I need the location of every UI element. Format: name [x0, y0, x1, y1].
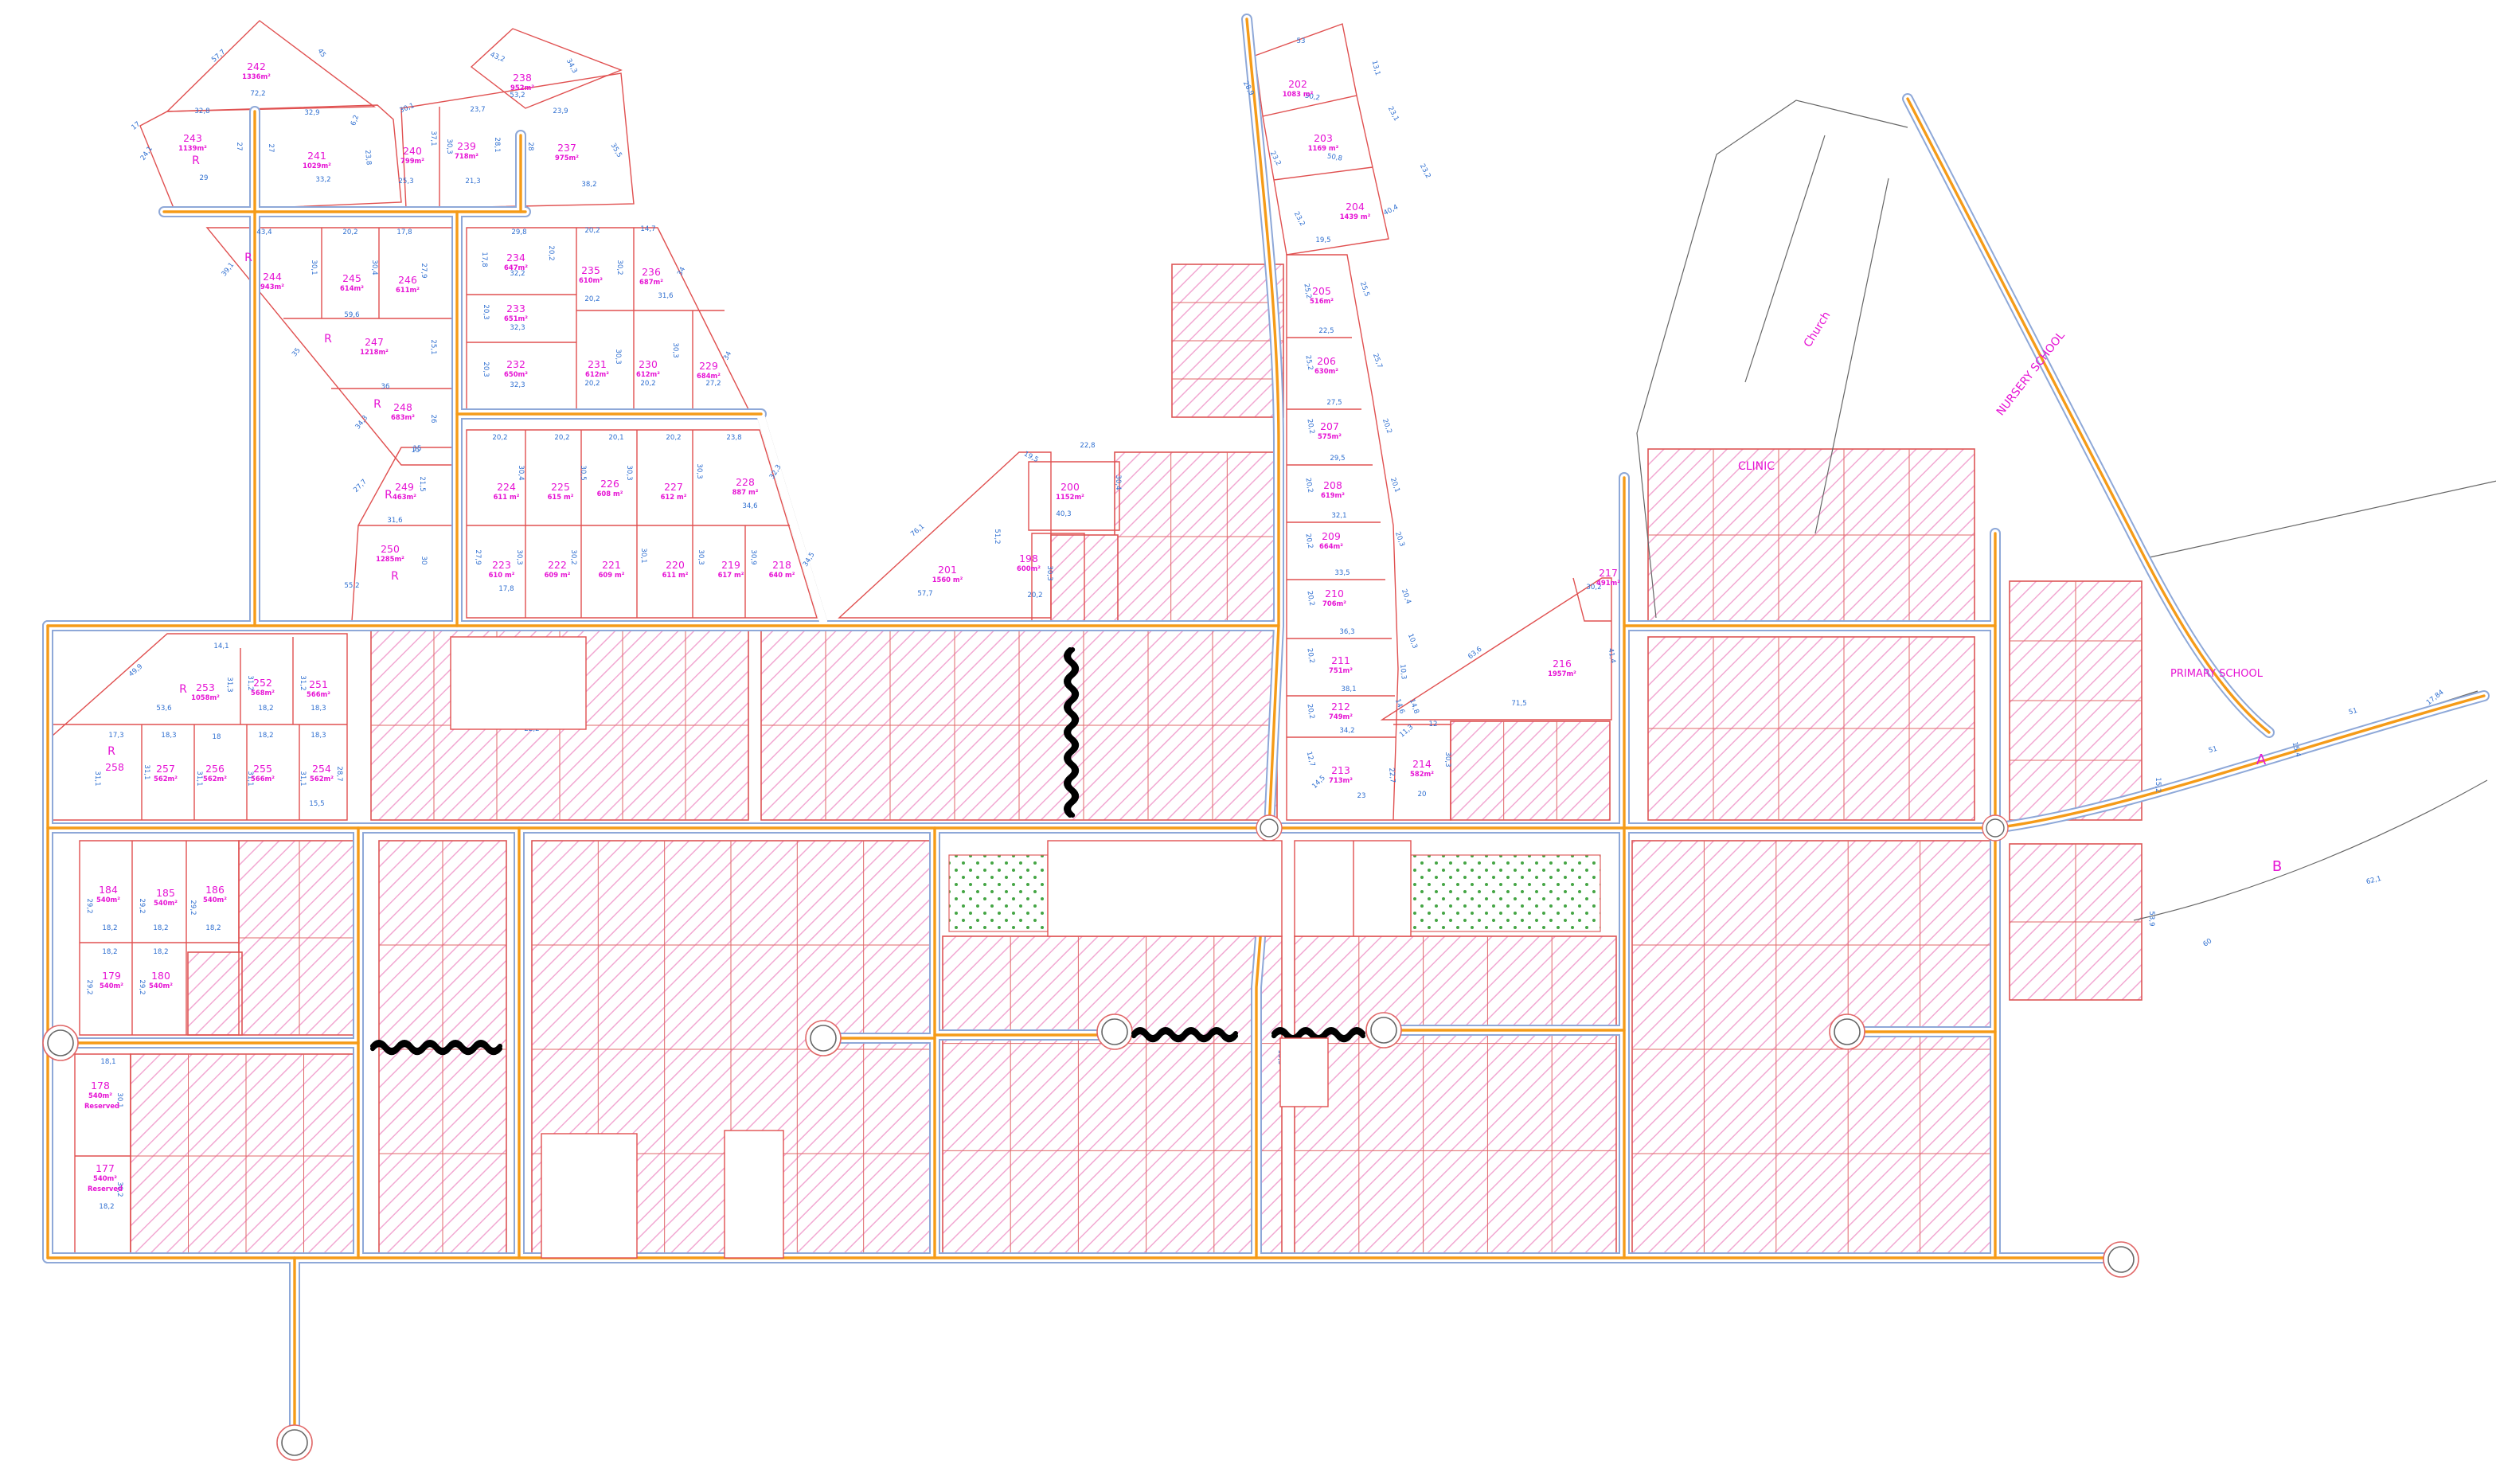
plot-number: 245 — [342, 272, 361, 284]
dimension-label: 29,2 — [138, 898, 146, 913]
plot-number: 253 — [196, 681, 215, 693]
reserved-label: Reserved — [84, 1102, 119, 1110]
dimension-label: 53,9 — [2147, 911, 2155, 926]
plot-number: 203 — [1314, 132, 1333, 144]
plot-area: 647m² — [504, 264, 528, 271]
dimension-label: 18,2 — [258, 705, 273, 713]
dimension-label: 32,3 — [510, 324, 525, 332]
dimension-label: 30,2 — [615, 260, 623, 275]
plot-number: 238 — [513, 72, 532, 84]
dimension-label: 14,1 — [213, 642, 229, 650]
reserve-mark: R — [179, 683, 187, 696]
plot-area: 706m² — [1322, 599, 1346, 607]
dimension-label: 27,2 — [705, 380, 721, 388]
plot-area: 1285m² — [376, 555, 404, 563]
plot-area: 1058m² — [191, 693, 220, 701]
plot-area: 575m² — [1318, 432, 1342, 440]
culdesac-circle-inner — [1371, 1017, 1396, 1043]
dimension-label: 53,6 — [156, 705, 171, 713]
plot-area: 540m² — [93, 1174, 117, 1182]
dimension-label: 29 — [200, 174, 209, 182]
plot-number: 185 — [156, 887, 175, 899]
dimension-label: 20,3 — [482, 304, 490, 319]
culdesac-circle-inner — [282, 1430, 307, 1455]
plot-area: 610 m² — [489, 571, 515, 579]
dimension-label: 57,7 — [917, 590, 932, 598]
plot-area: 540m² — [88, 1092, 112, 1099]
dimension-label: 31,6 — [387, 517, 402, 525]
plot-area: 612 m² — [661, 493, 687, 501]
dimension-label: 38,2 — [581, 181, 596, 189]
plot-number: 226 — [600, 478, 619, 490]
dimension-label: 29,5 — [1330, 455, 1345, 463]
plot-number: 207 — [1320, 420, 1339, 432]
plot-number: 219 — [721, 559, 740, 571]
plot-number: 235 — [581, 264, 600, 276]
plot-number: 204 — [1346, 201, 1365, 213]
dimension-label: 55,2 — [344, 582, 359, 590]
reserve-mark: R — [244, 252, 252, 264]
plot-number: 205 — [1312, 285, 1331, 297]
plot-area: 614m² — [340, 284, 364, 292]
dimension-label: 31,1 — [195, 771, 203, 786]
parcel-D — [1048, 841, 1282, 936]
dimension-label: 19,5 — [1315, 236, 1330, 244]
plot-area: 617 m² — [718, 571, 744, 579]
dimension-label: 27 — [267, 144, 275, 153]
plot-number: 232 — [506, 358, 525, 370]
dimension-label: 20,2 — [584, 227, 600, 235]
dimension-label: 17,3 — [108, 732, 123, 740]
reserve-mark: R — [107, 745, 115, 758]
plot-number: 217 — [1599, 567, 1618, 579]
plot-area: 718m² — [455, 152, 478, 160]
dimension-label: 28,7 — [335, 766, 343, 781]
plot-number: 243 — [183, 132, 202, 144]
dimension-label: 31,6 — [658, 292, 673, 300]
plot-area: 491m² — [1596, 579, 1620, 587]
plot-number: 210 — [1325, 588, 1344, 599]
plot-area: 943m² — [260, 283, 284, 291]
hatched-block — [188, 952, 242, 1035]
plot-area: 611 m² — [494, 493, 520, 501]
reserve-mark: R — [324, 333, 332, 346]
dimension-label: 30,4 — [370, 260, 378, 275]
plot-area: 600m² — [1017, 564, 1041, 572]
dimension-label: 28,1 — [493, 137, 501, 152]
plot-area: 687m² — [639, 278, 663, 286]
area-label-clinic: CLINIC — [1738, 460, 1775, 473]
dimension-label: 71,5 — [1511, 700, 1526, 708]
dimension-label: 72,2 — [250, 90, 265, 98]
plot-number: 234 — [506, 252, 525, 264]
dimension-label: 20,1 — [608, 434, 623, 442]
dimension-label: 40,3 — [1056, 510, 1071, 518]
dimension-label: 20,2 — [554, 434, 569, 442]
dimension-label: 20,3 — [482, 361, 490, 377]
plot-number: 216 — [1553, 658, 1572, 670]
culdesac-circle-inner — [1102, 1019, 1127, 1045]
plot-number: 180 — [151, 970, 170, 982]
dimension-label: 18,2 — [99, 1203, 114, 1211]
plot-area: 1029m² — [303, 162, 331, 170]
plot-area: 615 m² — [548, 493, 574, 501]
dimension-label: 10,3 — [1398, 664, 1408, 680]
culdesac-circle-inner — [1834, 1019, 1860, 1045]
plot-area: 713m² — [1329, 776, 1353, 784]
plot-number: 221 — [602, 559, 621, 571]
reserve-mark: R — [192, 154, 200, 167]
dimension-label: 25,3 — [398, 178, 413, 185]
plot-number: 248 — [393, 401, 412, 413]
plot-number: 208 — [1323, 479, 1342, 491]
dimension-label: 20,2 — [640, 380, 655, 388]
plot-number: 200 — [1061, 481, 1080, 493]
plot-area: 568m² — [251, 689, 275, 697]
dimension-label: 27,9 — [474, 549, 482, 564]
dimension-label: 20,2 — [547, 245, 555, 260]
dimension-label: 32,1 — [1331, 512, 1346, 520]
dimension-label: 18,2 — [258, 732, 273, 740]
dimension-label: 18 — [213, 733, 221, 741]
dimension-label: 20 — [1418, 791, 1427, 799]
plot-number: 178 — [91, 1080, 110, 1092]
dimension-label: 30,3 — [445, 139, 453, 154]
plot-number: 212 — [1331, 701, 1350, 713]
reserve-mark: R — [373, 398, 381, 411]
plot-area: 1218m² — [360, 348, 389, 356]
dimension-label: 22,5 — [1318, 327, 1334, 335]
dimension-label: 21,3 — [465, 178, 480, 185]
plot-area: 1560 m² — [932, 576, 963, 584]
dimension-label: 17,8 — [498, 585, 514, 593]
dimension-label: 18,2 — [153, 924, 168, 932]
dimension-label: 27 — [235, 143, 243, 151]
dimension-label: 31,1 — [143, 764, 150, 779]
dimension-label: 14,7 — [640, 225, 655, 233]
dimension-label: 30,3 — [1443, 752, 1451, 767]
plot-area: 1439 m² — [1340, 213, 1371, 221]
plot-number: 186 — [205, 884, 225, 896]
hatched-block — [943, 936, 1282, 1258]
plot-area: 1336m² — [242, 72, 271, 80]
dimension-label: 23 — [1357, 792, 1366, 800]
plot-area: 664m² — [1319, 542, 1343, 550]
plot-number: 229 — [699, 360, 718, 372]
plot-number: 247 — [365, 336, 384, 348]
dimension-label: 53,2 — [510, 92, 525, 100]
reserved-label: Reserved — [88, 1185, 123, 1193]
plot-number: 231 — [588, 358, 607, 370]
dimension-label: 20,2 — [666, 434, 681, 442]
dimension-label: 17,8 — [480, 252, 488, 267]
dimension-label: 18,2 — [153, 948, 168, 956]
plot-area: 1139m² — [178, 144, 207, 152]
plot-area: 609 m² — [599, 571, 625, 579]
dimension-label: 31,3 — [225, 677, 233, 692]
dimension-label: 31,2 — [299, 675, 307, 690]
dimension-label: 43,4 — [256, 228, 271, 236]
dimension-label: 18,3 — [161, 732, 176, 740]
plot-number: 211 — [1331, 654, 1350, 666]
plot-number: 225 — [551, 481, 570, 493]
plot-number: 201 — [938, 564, 957, 576]
park-area-east — [1411, 855, 1600, 931]
plot-area: 608 m² — [597, 490, 623, 498]
plot-number: 206 — [1317, 355, 1336, 367]
plot-number: 256 — [205, 763, 225, 775]
parcel-C — [1295, 841, 1411, 936]
plot-number: 179 — [102, 970, 121, 982]
dimension-label: 28 — [526, 143, 534, 151]
plot-area: 975m² — [555, 154, 579, 162]
dimension-label: 20,2 — [342, 228, 357, 236]
dimension-label: 15,2 — [2154, 777, 2162, 792]
plot-area: 562m² — [310, 775, 334, 783]
site-plan-canvas: 57,74572,232,832,91724,127272933,26,223,… — [0, 0, 2496, 1484]
plot-area: 619m² — [1321, 491, 1345, 499]
dimension-label: 30,4 — [1114, 474, 1122, 490]
plot-number: 198 — [1019, 553, 1038, 564]
plot-number: 233 — [506, 303, 525, 314]
dimension-label: 36,3 — [1339, 628, 1354, 636]
dimension-label: 33,2 — [315, 176, 330, 184]
dimension-label: 30,3 — [695, 463, 703, 478]
dimension-label: 59,6 — [344, 311, 359, 319]
dimension-label: 25,1 — [429, 339, 437, 354]
dimension-label: 18,3 — [311, 705, 326, 713]
hatched-block — [1451, 721, 1610, 820]
plot-area: 749m² — [1329, 713, 1353, 721]
plot-number: 209 — [1322, 530, 1341, 542]
culdesac-circle-inner — [811, 1025, 836, 1051]
dimension-label: 32,8 — [194, 107, 209, 115]
dimension-label: 18,1 — [100, 1058, 115, 1066]
plot-number: 220 — [666, 559, 685, 571]
plot-number: 224 — [497, 481, 516, 493]
plot-area: 610m² — [579, 276, 603, 284]
dimension-label: 30,3 — [614, 349, 622, 364]
dimension-label: 29,2 — [85, 898, 93, 913]
dimension-label: 30,3 — [697, 549, 705, 564]
dimension-label: 29,2 — [189, 900, 197, 915]
plot-area: 566m² — [251, 775, 275, 783]
dimension-label: 37,1 — [429, 131, 437, 146]
plot-193-cell — [451, 637, 586, 729]
plot-area: 651m² — [504, 314, 528, 322]
plot-area: 562m² — [203, 775, 227, 783]
plot-area: 1083 m² — [1283, 90, 1314, 98]
dimension-label: 21,5 — [418, 476, 426, 491]
plot-number: 228 — [736, 476, 755, 488]
dimension-label: 22,7 — [1387, 767, 1396, 783]
dimension-label: 18,2 — [102, 924, 117, 932]
dimension-label: 36 — [381, 383, 390, 391]
dimension-label: 20,2 — [584, 380, 600, 388]
plot-number: 252 — [253, 677, 272, 689]
site-plan-svg: 57,74572,232,832,91724,127272933,26,223,… — [0, 0, 2496, 1484]
dimension-label: 18,2 — [205, 924, 221, 932]
plot-area: 887 m² — [732, 488, 759, 496]
plot-number: 244 — [263, 271, 282, 283]
dimension-label: 15,5 — [309, 800, 324, 808]
plot-number: 237 — [557, 142, 576, 154]
plot-area: 1152m² — [1056, 493, 1084, 501]
dimension-label: 20,2 — [584, 295, 600, 303]
dimension-label: 29,2 — [85, 979, 93, 994]
plot-area: 650m² — [504, 370, 528, 378]
plot-area: 952m² — [510, 84, 534, 92]
dimension-label: 18,2 — [102, 948, 117, 956]
plot-number: 242 — [247, 61, 266, 72]
dimension-label: 30,5 — [579, 465, 587, 480]
dimension-label: 30 — [420, 556, 428, 565]
plot-area: 609 m² — [545, 571, 571, 579]
plot-number: 184 — [99, 884, 118, 896]
plot-area: 540m² — [100, 982, 123, 990]
dimension-label: 38,1 — [1341, 685, 1356, 693]
plot-area: 611 m² — [662, 571, 689, 579]
plot-number: 239 — [457, 140, 476, 152]
dimension-label: 23,9 — [553, 107, 568, 115]
plot-number: 240 — [403, 145, 422, 157]
dimension-label: 30,3 — [515, 549, 523, 564]
dimension-label: 15 — [412, 447, 420, 455]
dimension-label: 27,9 — [420, 263, 428, 278]
plot-number: 177 — [96, 1162, 115, 1174]
roundabout-circle-inner — [1986, 819, 2004, 837]
plot-area: 540m² — [149, 982, 173, 990]
plot-area: 799m² — [400, 157, 424, 165]
dimension-label: 12 — [1429, 721, 1438, 728]
plot-number: 249 — [395, 481, 414, 493]
dimension-label: 30,3 — [625, 465, 633, 480]
dimension-label: 30,2 — [569, 549, 577, 564]
roundabout-circle-inner — [1260, 819, 1278, 837]
dimension-label: 18,3 — [311, 732, 326, 740]
plot-number: 227 — [664, 481, 683, 493]
plot-area: 463m² — [393, 493, 416, 501]
dimension-label: 29,8 — [511, 228, 526, 236]
dimension-label: 30,1 — [310, 260, 318, 275]
plot-number: 230 — [639, 358, 658, 370]
dimension-label: 32,9 — [304, 109, 319, 117]
dimension-label: 34,6 — [742, 502, 757, 510]
plot-number: 250 — [381, 543, 400, 555]
culdesac-circle-inner — [48, 1030, 73, 1056]
hatched-block — [1295, 936, 1616, 1258]
dimension-label: 30,9 — [749, 549, 757, 564]
plot-area: 683m² — [391, 413, 415, 421]
dimension-label: 20,2 — [1027, 592, 1042, 599]
plot-area: 566m² — [307, 690, 330, 698]
plot-area: 562m² — [154, 775, 178, 783]
plot-number: 202 — [1288, 78, 1307, 90]
plot-area: 751m² — [1329, 666, 1353, 674]
plot-number: 251 — [309, 678, 328, 690]
plot-number: 258 — [105, 761, 124, 773]
dimension-label: 27,5 — [1326, 399, 1342, 407]
dimension-label: 30,3 — [1045, 565, 1053, 580]
area-label-b: B — [2272, 858, 2282, 875]
reserve-mark: R — [385, 489, 393, 502]
dimension-label: 20,2 — [492, 434, 507, 442]
dimension-label: 31,1 — [299, 771, 307, 786]
plot-area: 516m² — [1310, 297, 1334, 305]
plot-number: 241 — [307, 150, 326, 162]
plot-number: 255 — [253, 763, 272, 775]
plot-number: 246 — [398, 274, 417, 286]
plot-number: 257 — [156, 763, 175, 775]
plot-area: 630m² — [1314, 367, 1338, 375]
dimension-label: 23,8 — [726, 434, 741, 442]
dimension-label: 23,7 — [470, 106, 485, 114]
plot-area: 611m² — [396, 286, 420, 294]
dimension-label: 17,8 — [396, 228, 412, 236]
reserve-mark: R — [391, 570, 399, 583]
plot-number: 214 — [1412, 758, 1432, 770]
plot-area: 1169 m² — [1308, 144, 1339, 152]
dimension-label: 26 — [429, 415, 437, 424]
plot-E-cell — [541, 1134, 637, 1258]
dimension-label: 53 — [1297, 37, 1306, 45]
plot-number: 213 — [1331, 764, 1350, 776]
plot-number: 223 — [492, 559, 511, 571]
plot-area: 1957m² — [1548, 670, 1576, 678]
dimension-label: 31,1 — [93, 771, 101, 786]
dimension-label: 30,4 — [517, 465, 525, 480]
dimension-label: 23,8 — [363, 150, 373, 166]
plot-area: 684m² — [697, 372, 721, 380]
dimension-label: 30,3 — [671, 342, 679, 357]
plot-area: 540m² — [154, 899, 178, 907]
area-label-primary-school: PRIMARY SCHOOL — [2170, 668, 2264, 680]
culdesac-circle-inner — [2108, 1247, 2134, 1272]
park-area-west — [949, 855, 1048, 931]
plot-68-cell — [725, 1131, 783, 1258]
plot-area: 540m² — [96, 896, 120, 904]
dimension-label: 32,3 — [510, 381, 525, 389]
dimension-label: 51,2 — [993, 529, 1001, 544]
dimension-label: 33,5 — [1334, 569, 1350, 577]
area-label-a: A — [2256, 752, 2267, 768]
dimension-label: 29,2 — [138, 979, 146, 994]
dimension-label: 22,8 — [1080, 442, 1095, 450]
plot-area: 540m² — [203, 896, 227, 904]
plot-area: 582m² — [1410, 770, 1434, 778]
dimension-label: 34,2 — [1339, 727, 1354, 735]
plot-number: 222 — [548, 559, 567, 571]
dimension-label: 30,1 — [639, 548, 647, 563]
plot-number: 218 — [772, 559, 791, 571]
plot-area: 612m² — [636, 370, 660, 378]
plot-area: 640 m² — [769, 571, 795, 579]
plot-number: 236 — [642, 266, 661, 278]
plot-number: 254 — [312, 763, 331, 775]
plot-area: 612m² — [585, 370, 609, 378]
plot-34-cell — [1280, 1038, 1328, 1107]
